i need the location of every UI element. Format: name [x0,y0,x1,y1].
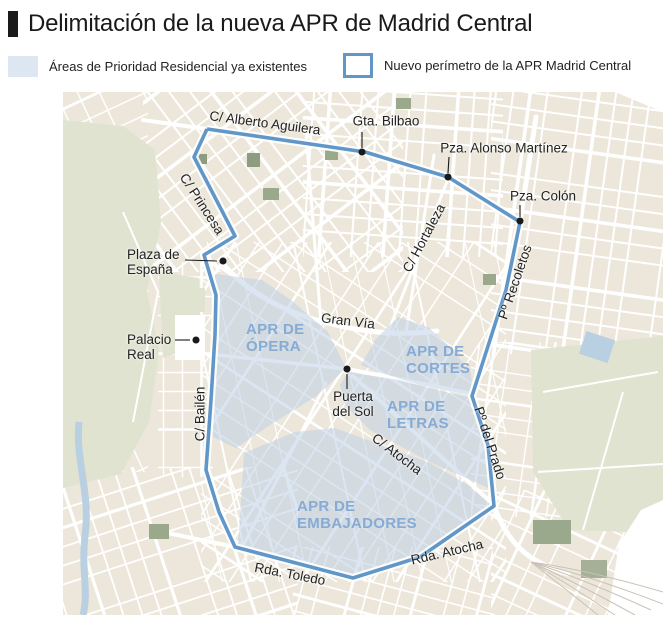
title-accent-bar [8,11,18,37]
street-label-plaza-espana: Plaza de España [127,247,180,277]
street-label-bailen: C/ Bailén [192,387,207,442]
madrid-central-map: C/ Alberto Aguilera Gta. Bilbao Pza. Alo… [63,92,663,615]
zone-label-cortes: APR DE CORTES [406,343,470,378]
page-title: Delimitación de la nueva APR de Madrid C… [28,10,532,38]
legend-label-existing-areas: Áreas de Prioridad Residencial ya existe… [49,59,307,74]
legend-swatch-new-perimeter [343,53,373,78]
legend-item-existing-areas: Áreas de Prioridad Residencial ya existe… [8,56,307,77]
marker-alonso-martinez [445,174,451,180]
legend-label-new-perimeter: Nuevo perímetro de la APR Madrid Central [384,58,631,73]
zone-label-letras: APR DE LETRAS [387,398,449,433]
park-patch [247,153,260,167]
street-label-gta-bilbao: Gta. Bilbao [353,113,420,128]
street-label-colon: Pza. Colón [510,188,576,203]
marker-colon [517,218,523,224]
marker-palacio-real [193,337,199,343]
street-label-alonso-martinez: Pza. Alonso Martínez [440,140,568,155]
legend: Áreas de Prioridad Residencial ya existe… [0,50,663,82]
park-patch [396,98,411,109]
street-label-palacio-real: Palacio Real [127,332,171,362]
header: Delimitación de la nueva APR de Madrid C… [8,10,532,38]
park-patch [533,520,571,544]
park-sabatini [183,288,205,312]
marker-gta-bilbao [359,149,365,155]
palacio-real-building [175,315,205,360]
legend-item-new-perimeter: Nuevo perímetro de la APR Madrid Central [343,53,631,78]
infographic: Delimitación de la nueva APR de Madrid C… [0,0,663,627]
park-patch [483,274,496,285]
marker-puerta-sol [344,366,350,372]
legend-swatch-existing-areas [8,56,38,77]
street-label-puerta-sol: Puerta del Sol [332,389,373,419]
park-patch [263,188,279,200]
park-patch [581,560,607,578]
zone-label-opera: APR DE ÓPERA [246,321,304,356]
marker-plaza-espana [220,258,226,264]
zone-label-embajadores: APR DE EMBAJADORES [297,498,417,533]
park-patch [149,524,169,539]
